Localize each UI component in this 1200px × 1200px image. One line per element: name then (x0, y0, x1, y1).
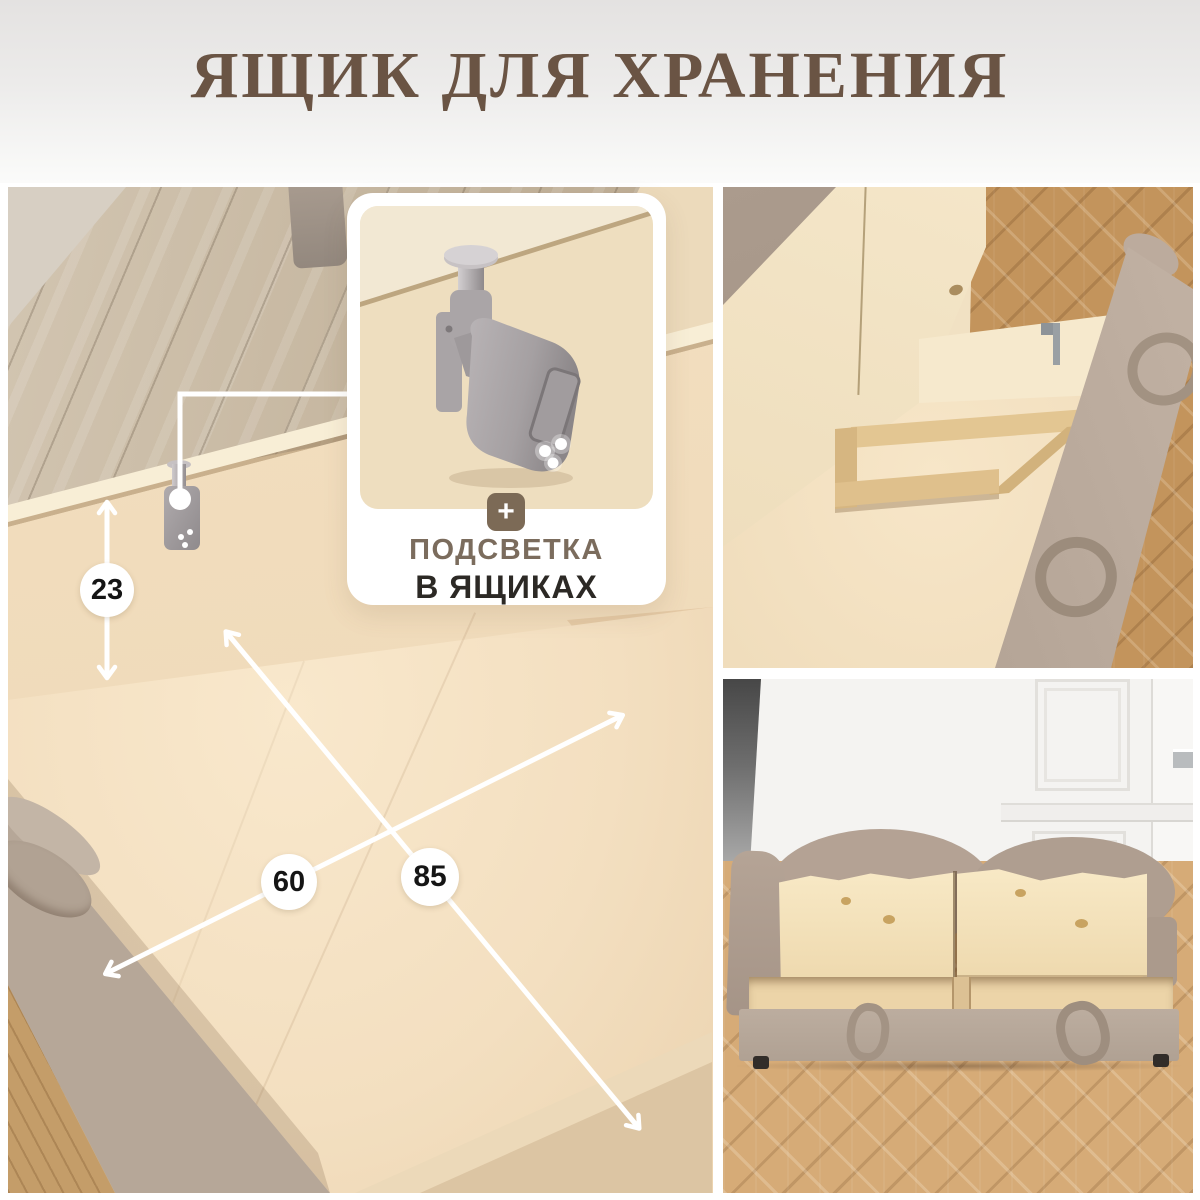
width-arrow (107, 716, 621, 973)
lid-gap-line (953, 871, 957, 979)
photo-open-drawer-side-view (723, 187, 1193, 668)
drawer-box-front (739, 1009, 1179, 1061)
caster-wheel-right (1153, 1054, 1169, 1067)
storage-lid-right (957, 867, 1147, 979)
plywood-knot (1075, 919, 1088, 928)
plus-badge: + (487, 493, 525, 531)
callout-title-line1: ПОДСВЕТКА (347, 534, 666, 567)
plywood-knot (883, 915, 895, 924)
dim-label-height: 23 (80, 563, 134, 617)
hinge-closeup-photo (360, 206, 653, 509)
dim-label-length: 85 (401, 848, 459, 906)
page-title: ЯЩИК ДЛЯ ХРАНЕНИЯ (0, 40, 1200, 113)
callout-connector-dot (169, 488, 191, 510)
led-feature-callout-card: + ПОДСВЕТКА В ЯЩИКАХ (347, 193, 666, 605)
callout-connector-line (180, 394, 347, 499)
drawer-center-divider (952, 977, 971, 1011)
plywood-knot (1015, 889, 1026, 897)
callout-title-line2: В ЯЩИКАХ (347, 569, 666, 606)
dim-label-width: 60 (261, 854, 317, 910)
led-hinge-illustration (406, 226, 606, 496)
metal-bracket (1053, 323, 1060, 365)
storage-lid-left (779, 869, 955, 981)
caster-wheel-left (753, 1056, 769, 1069)
photo-sofa-open-storage (723, 679, 1193, 1193)
drawer-floor-shadow (731, 1060, 1187, 1072)
shelf-corner (1173, 749, 1193, 768)
wall-molding-upper (1035, 679, 1130, 791)
plus-icon: + (497, 493, 515, 531)
plywood-knot (841, 897, 851, 905)
wall-chair-rail (1001, 803, 1193, 822)
product-card: ЯЩИК ДЛЯ ХРАНЕНИЯ (0, 0, 1200, 1200)
